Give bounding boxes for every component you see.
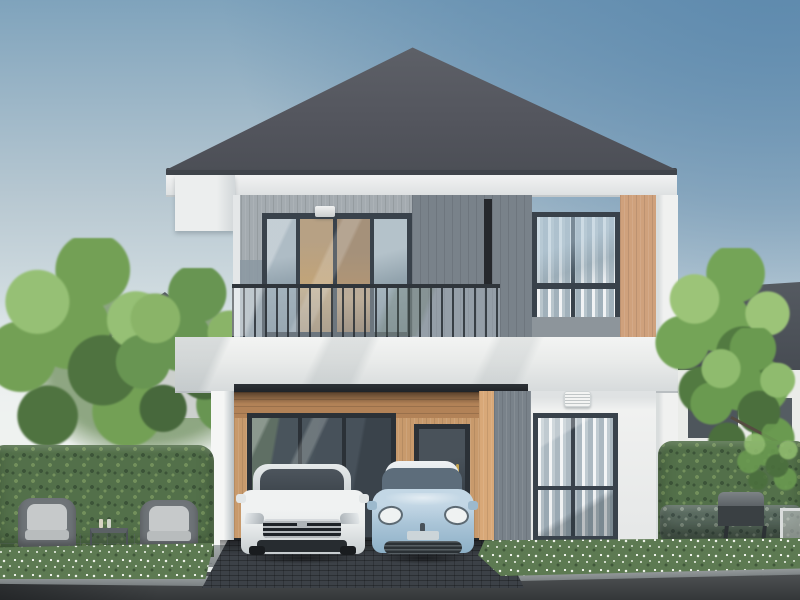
- gray-panel-ground: [494, 391, 531, 546]
- wall-band-below-window: [532, 317, 620, 338]
- window-upper-right-sky-reflection: [537, 217, 615, 283]
- car-white-wheel-right: [340, 546, 356, 555]
- roof-fascia: [166, 175, 677, 197]
- car-blue-mirror-left: [367, 501, 377, 510]
- window-upper-right-glass-bottom: [537, 289, 615, 317]
- tree-right-overhang: [735, 424, 800, 496]
- balcony-beam-left: [175, 175, 235, 231]
- car-white-sedan: [241, 464, 365, 564]
- balcony-railing-glass-reflection: [232, 288, 500, 336]
- car-white-headlight-right: [339, 513, 360, 524]
- car-blue-hatchback: [372, 461, 474, 564]
- armchair-left: [18, 498, 76, 548]
- bbq-grill: [718, 492, 764, 542]
- car-blue-plate: [407, 531, 439, 540]
- car-white-lower-intake: [257, 540, 347, 552]
- car-white-mirror-left: [236, 494, 246, 503]
- window-lower-right-reflection: [538, 418, 613, 536]
- car-white-headlight-left: [244, 513, 265, 524]
- car-white-emblem: [297, 521, 307, 527]
- louvre-vent: [564, 391, 591, 407]
- bbq-grill-lid: [718, 492, 764, 507]
- car-blue-mirror-right: [468, 501, 478, 510]
- bbq-grill-body: [718, 506, 764, 526]
- armchair-left-seat: [25, 530, 69, 540]
- wall-lamp: [315, 206, 335, 217]
- parapet-tree-shadows: [175, 337, 678, 391]
- armchair-right: [140, 500, 198, 548]
- carport-ceiling-shadow: [234, 392, 500, 404]
- feature-panel-groove: [484, 199, 492, 285]
- armchair-left-cushion: [27, 504, 67, 530]
- wood-strip-ground: [479, 391, 494, 546]
- car-blue-bonnet-highlight: [386, 493, 460, 505]
- car-white-wheel-left: [249, 546, 265, 555]
- table-bottles: [99, 519, 103, 528]
- flower-bed-left: [0, 543, 214, 579]
- armchair-right-cushion: [149, 506, 189, 531]
- armchair-right-seat: [147, 531, 191, 541]
- wood-panel-upper-right: [620, 195, 656, 338]
- car-blue-grille: [384, 541, 462, 554]
- architectural-render-scene: [0, 0, 800, 600]
